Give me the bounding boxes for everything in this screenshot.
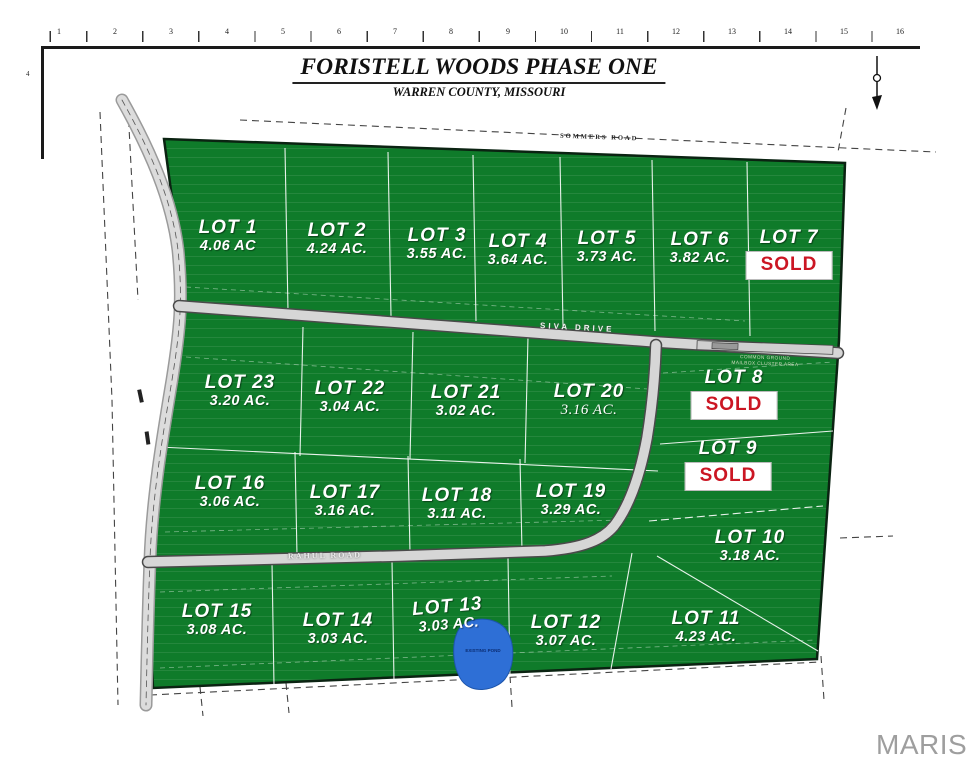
north-arrow-icon — [872, 56, 882, 110]
lot-3-label: LOT 3 3.55 AC. — [407, 226, 468, 262]
rahul-road-label: RAHUL ROAD — [288, 550, 362, 560]
lot-7-label: LOT 7 SOLD — [746, 228, 833, 280]
lot-16-label: LOT 16 3.06 AC. — [195, 474, 265, 510]
lot-21-label: LOT 21 3.02 AC. — [431, 383, 501, 419]
lot-4-label: LOT 4 3.64 AC. — [488, 232, 549, 268]
lot-23-label: LOT 23 3.20 AC. — [205, 373, 275, 409]
sold-badge-lot-8: SOLD — [691, 391, 778, 420]
lot-8-label: LOT 8 SOLD — [691, 368, 778, 420]
pond-label: EXISTING POND — [460, 648, 506, 653]
lot-22-label: LOT 22 3.04 AC. — [315, 379, 385, 415]
sold-badge-lot-7: SOLD — [746, 251, 833, 280]
lot-1-label: LOT 1 4.06 AC — [199, 218, 258, 254]
lot-13-label: LOT 13 3.03 AC. — [411, 594, 484, 636]
lot-14-label: LOT 14 3.03 AC. — [303, 611, 373, 647]
lot-10-label: LOT 10 3.18 AC. — [715, 528, 785, 564]
lot-6-label: LOT 6 3.82 AC. — [670, 230, 731, 266]
lot-18-label: LOT 18 3.11 AC. — [422, 486, 492, 522]
maris-watermark: MARIS — [876, 729, 967, 761]
lot-12-label: LOT 12 3.07 AC. — [531, 613, 601, 649]
lot-9-label: LOT 9 SOLD — [685, 439, 772, 491]
lot-20-label: LOT 20 3.16 AC. — [554, 382, 624, 419]
lot-2-label: LOT 2 4.24 AC. — [307, 221, 368, 257]
lot-11-label: LOT 11 4.23 AC. — [672, 609, 741, 645]
lot-17-label: LOT 17 3.16 AC. — [310, 483, 380, 519]
sold-badge-lot-9: SOLD — [685, 462, 772, 491]
lot-19-label: LOT 19 3.29 AC. — [536, 482, 606, 518]
lot-5-label: LOT 5 3.73 AC. — [577, 229, 638, 265]
lot-15-label: LOT 15 3.08 AC. — [182, 602, 252, 638]
